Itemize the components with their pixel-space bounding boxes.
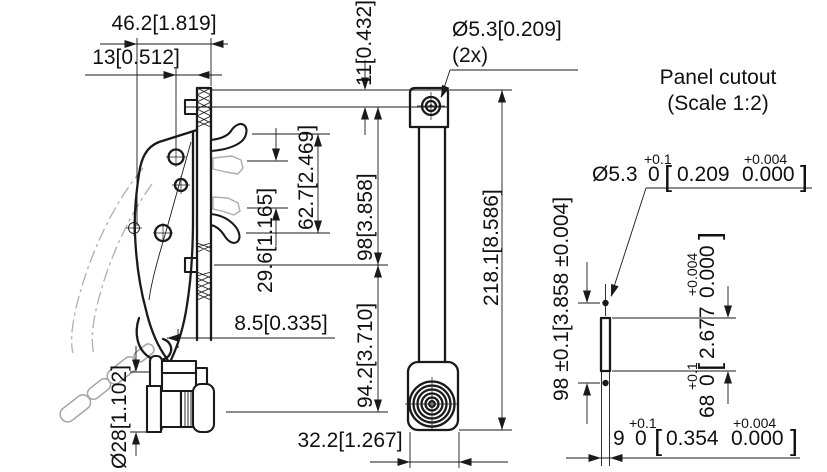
handle-inner-contour (149, 142, 191, 300)
tolerance-inch-lower: 0.000 (696, 245, 719, 298)
panel-cutout-title: Panel cutout (660, 66, 777, 89)
dim-text-wall-thickness: 8.5[0.335] (234, 312, 327, 335)
tolerance-mm-value: 9 (613, 427, 625, 450)
dim-text-cutout-hole: Ø5.3 +0.1 0 [ 0.209 +0.004 0.000 ] (592, 151, 808, 193)
dim-text-hook-open-span: 29.6[1.165] (254, 188, 277, 293)
dim-text-handle-width: 46.2[1.819] (111, 12, 216, 35)
handle-hole-3 (153, 223, 173, 243)
lock-flange (147, 386, 161, 432)
callout-mount-hole: Ø5.3[0.209] (452, 18, 562, 41)
handle-hole-2 (172, 176, 190, 194)
bracket-open: [ (664, 161, 672, 193)
leader-mount-hole (437, 70, 578, 99)
dim-text-total-length: 218.1[8.586] (480, 189, 503, 306)
bracket-close: ] (790, 425, 798, 457)
rail-hatch-top (197, 88, 211, 127)
dim-text-cutout-slot-height: 68 +0.1 0 [ 2.677 +0.004 0.000 ] (684, 232, 726, 418)
dimension-line (85, 69, 222, 148)
front-bar (419, 127, 445, 362)
dim-text-lock-diameter: Ø28[1.102] (108, 365, 131, 469)
tolerance-inch-value: 2.677 (696, 306, 719, 359)
callout-mount-hole-qty: (2x) (452, 44, 488, 67)
bracket-open: [ (694, 363, 726, 371)
lock-body (161, 391, 181, 427)
tolerance-inch-value: 0.354 (666, 427, 719, 450)
cutout-hole-top-dot (602, 300, 608, 306)
front-view (405, 88, 459, 431)
dim-text-top-to-hole: 11[0.432] (353, 0, 376, 86)
leader-line (441, 70, 578, 97)
dim-text-base-width: 32.2[1.267] (297, 429, 402, 452)
cutout-slot-extension-lines (602, 284, 610, 466)
technical-drawing-canvas: 46.2[1.819] 13[0.512] 11[0.432] Ø5.3[0.2… (0, 0, 827, 472)
tolerance-lower: 0 (696, 374, 719, 386)
tolerance-inch-lower: 0.000 (742, 163, 795, 186)
cutout-slot (601, 318, 610, 371)
dim-hole-to-face (85, 69, 222, 148)
lock-cap (193, 384, 214, 432)
open-handle-phantom-outline (72, 168, 143, 353)
panel-cutout-scale: (Scale 1:2) (667, 92, 769, 115)
lock-assembly (137, 318, 214, 432)
latch-engineering-drawing: 46.2[1.819] 13[0.512] 11[0.432] Ø5.3[0.2… (0, 0, 827, 472)
dimension-line (578, 262, 600, 424)
bracket-open: [ (654, 425, 662, 457)
dim-text-cutout-height: 98 ±0.1[3.858 ±0.004] (550, 197, 573, 401)
dim-cutout-height (578, 262, 600, 424)
handle-outline (135, 130, 197, 362)
rail-hatch-mid (197, 243, 211, 300)
open-handle-phantom-inner (92, 184, 152, 355)
handle-right-edge (171, 132, 193, 360)
hook-upper (211, 124, 246, 151)
side-view (57, 88, 246, 432)
panel-cutout-view (601, 284, 610, 466)
cutout-hole-bottom-dot (602, 380, 608, 386)
handle-hole-1 (166, 147, 186, 167)
pivot-centerline-circle (126, 220, 142, 236)
tolerance-lower: 0 (635, 427, 647, 450)
dim-text-lower-span: 94.2[3.710] (354, 303, 377, 408)
dim-text-hook-span: 62.7[2.469] (295, 125, 318, 230)
open-lock-ghost (57, 342, 156, 425)
tolerance-lower: 0 (648, 163, 660, 186)
tolerance-mm-value: Ø5.3 (592, 163, 638, 186)
tolerance-mm-value: 68 (696, 395, 719, 418)
hook-open-lower-ghost (213, 197, 240, 215)
dim-text-mount-span: 98[3.858] (354, 173, 377, 261)
hook-lower (211, 214, 239, 243)
extension-line (186, 90, 512, 107)
hook-open-upper-ghost (213, 156, 243, 174)
bracket-close: ] (800, 161, 808, 193)
bracket-close: ] (694, 232, 726, 240)
tolerance-inch-value: 0.209 (677, 163, 730, 186)
lock-arm (162, 361, 196, 373)
tolerance-inch-lower: 0.000 (731, 427, 784, 450)
dim-text-hole-to-face: 13[0.512] (92, 46, 180, 69)
dim-top-to-hole (186, 60, 512, 135)
dim-text-cutout-slot-width: 9 +0.1 0 [ 0.354 +0.004 0.000 ] (613, 415, 798, 457)
lock-face-rings (405, 377, 459, 431)
